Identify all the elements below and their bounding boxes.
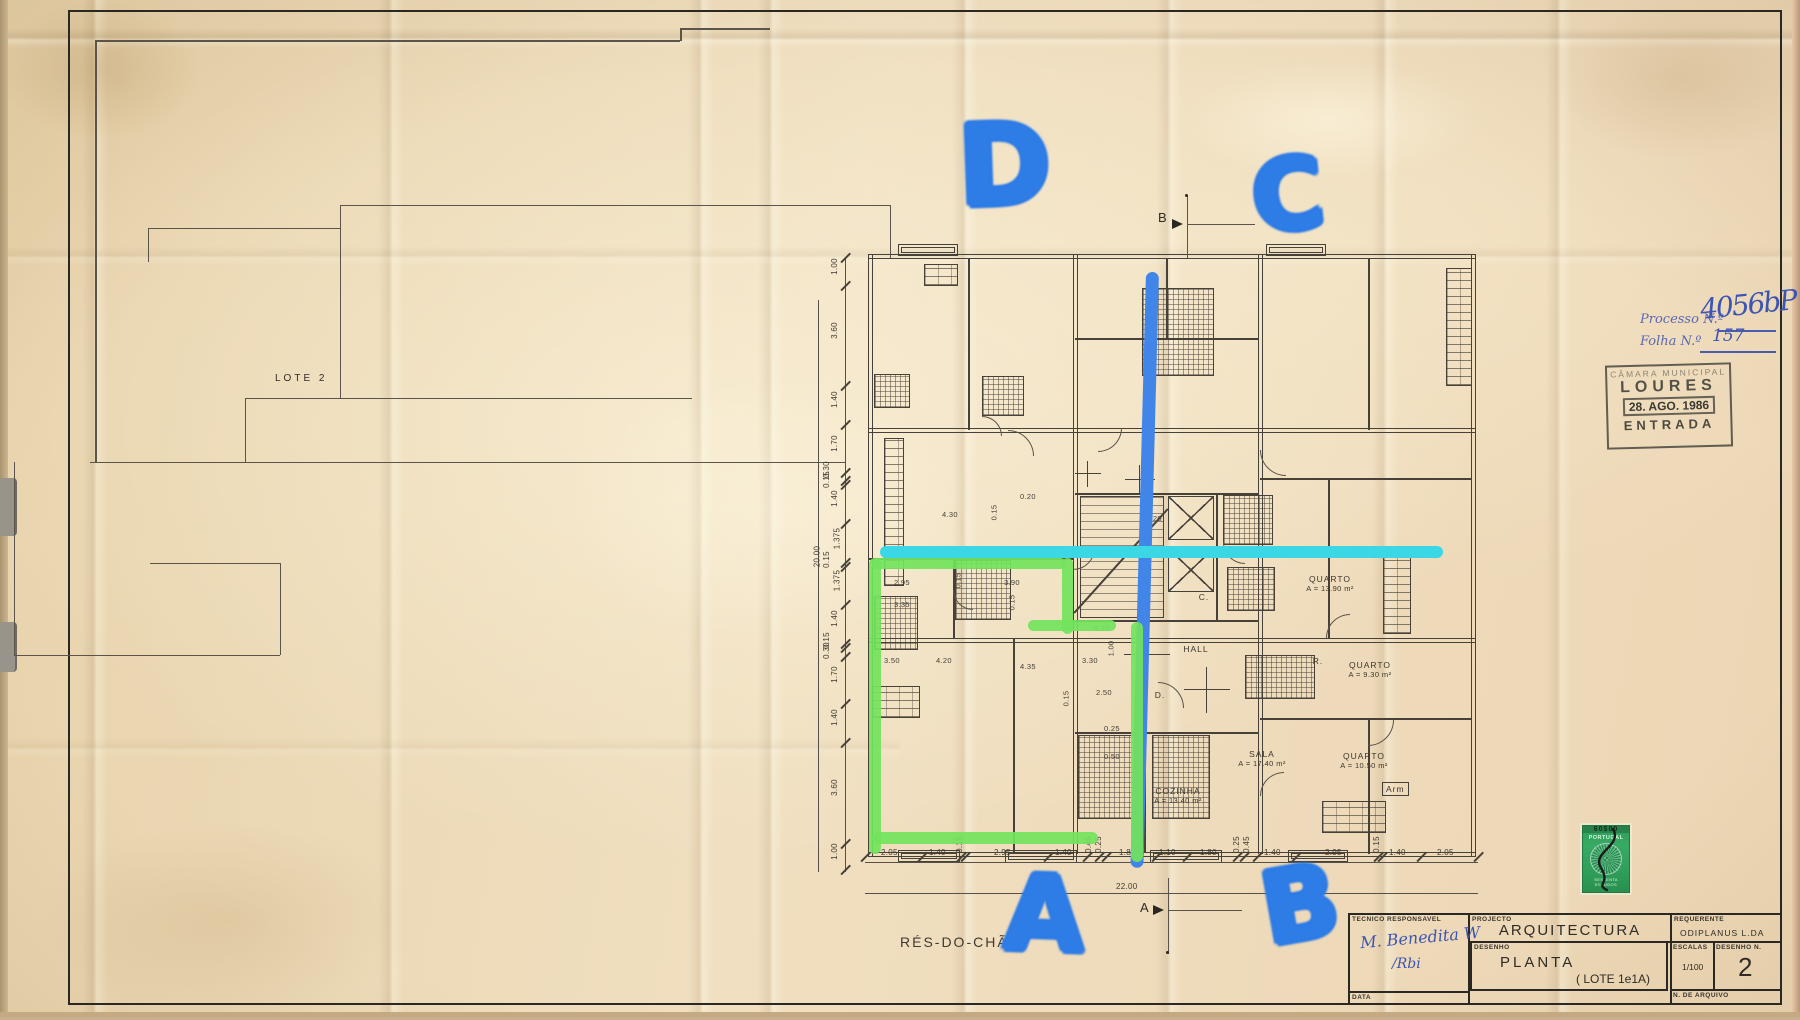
dimension-label: 0.15 — [1061, 691, 1070, 707]
dimension-label: 1.40 — [830, 610, 839, 627]
brick — [1383, 556, 1411, 634]
room-label: R. — [1313, 656, 1324, 666]
stain — [1180, 60, 1480, 180]
dimension-label: 1.40 — [830, 391, 839, 408]
fl — [1348, 991, 1468, 993]
brick — [1322, 801, 1386, 833]
crease-h — [0, 28, 1800, 48]
dimension-line — [865, 893, 1478, 894]
arc — [1260, 772, 1284, 796]
section-line-top — [1187, 224, 1255, 225]
folha-underline — [1700, 351, 1776, 353]
annotation-letter-d: D — [956, 114, 1052, 218]
dimension-label: 1.00 — [830, 258, 839, 275]
signature-2: /Rbi — [1392, 956, 1421, 972]
dimension-label: 3.60 — [830, 322, 839, 339]
dimension-label: 1.00 — [1106, 641, 1115, 657]
dimension-line — [818, 300, 819, 872]
green-highlight — [872, 558, 1066, 569]
floor-plan: 22.00 20.00 2.051.400.152.951.400.450.25… — [858, 252, 1490, 912]
section-line-bottom — [1168, 878, 1169, 954]
room-area: A = 13.40 m² — [1154, 796, 1202, 805]
room-name: QUARTO — [1340, 751, 1388, 761]
arquivo-label: N. DE ARQUIVO — [1673, 992, 1729, 999]
room-label: QUARTOA = 9.30 m² — [1349, 660, 1392, 679]
annotation-letter-a: A — [1002, 867, 1086, 963]
dimension-label: 1.40 — [830, 709, 839, 726]
tile — [1227, 567, 1275, 611]
dimension-label: 0.45 — [1242, 836, 1251, 853]
tile — [1223, 495, 1273, 545]
total-dimension: 22.00 — [1116, 882, 1138, 891]
data-label: DATA — [1352, 994, 1371, 1001]
dimension-label: 1.10 — [1159, 848, 1176, 857]
green-highlight — [1028, 620, 1116, 631]
frame-line — [68, 10, 1782, 12]
dimension-label: 0.15 — [1007, 595, 1016, 611]
w — [1260, 718, 1472, 720]
green-highlight — [1131, 622, 1143, 862]
dimension-label: 2.50 — [1096, 688, 1112, 697]
dot — [1185, 194, 1188, 197]
lot-boundary — [245, 398, 692, 399]
fl — [1670, 989, 1782, 991]
section-label-top: B — [1158, 210, 1167, 225]
w — [1368, 258, 1370, 430]
numero-value: 2 — [1738, 952, 1752, 983]
path — [1599, 829, 1615, 890]
section-label-bottom: A — [1140, 900, 1149, 915]
dwh — [868, 428, 1476, 433]
frame-inner-line — [680, 28, 770, 30]
dimension-label: 4.35 — [1020, 662, 1036, 671]
arc — [1098, 428, 1122, 452]
stain — [0, 0, 200, 140]
dimension-label: 1.70 — [830, 666, 839, 683]
room-name: R. — [1313, 656, 1324, 666]
folha-label: Folha N.º — [1640, 334, 1701, 349]
room-name: Arm — [1386, 784, 1405, 794]
stamp-date: 28. AGO. 1986 — [1623, 396, 1716, 416]
dimension-label: 0.30 — [822, 642, 831, 659]
w — [1075, 732, 1258, 734]
lot-boundary — [148, 228, 149, 262]
frame-line — [68, 10, 70, 1005]
lot-boundary — [148, 228, 340, 229]
fl — [1713, 942, 1715, 991]
lot-boundary — [280, 563, 281, 655]
dimension-label: 0.20 — [1020, 492, 1036, 501]
folha-value: 157 — [1712, 326, 1744, 346]
room-name: QUARTO — [1306, 574, 1354, 584]
green-highlight — [869, 558, 881, 854]
dimension-label: 2.05 — [1437, 848, 1454, 857]
numero-label: DESENHO N. — [1716, 944, 1761, 951]
crease-v — [1546, 0, 1572, 1017]
room-area: A = 13.90 m² — [1306, 584, 1354, 593]
w — [1260, 478, 1472, 480]
room-label: HALL — [1183, 644, 1208, 654]
stamp-city: LOURES — [1607, 376, 1729, 397]
lot-boundary — [245, 398, 246, 462]
room-area: A = 9.30 m² — [1349, 670, 1392, 679]
lot-boundary — [890, 205, 891, 258]
green-highlight — [872, 832, 1098, 844]
room-name: D. — [1155, 690, 1166, 700]
dimension-label: 0.15 — [1372, 836, 1381, 853]
lot-boundary — [340, 205, 341, 398]
crease-h — [0, 738, 900, 758]
dimension-label: 1.375 — [832, 570, 841, 592]
lot-boundary — [90, 462, 845, 463]
tile — [982, 376, 1024, 416]
section-line-top — [1187, 196, 1188, 258]
dimension-label: 0.15 — [822, 551, 831, 568]
section-arrow — [1153, 905, 1164, 915]
dimension-label: 4.20 — [936, 656, 952, 665]
frame-inner-line — [95, 40, 680, 42]
dimension-label: 1.40 — [1389, 848, 1406, 857]
dimension-label: 2.05 — [881, 848, 898, 857]
room-name: SALA — [1238, 749, 1286, 759]
dimension-label: 3.50 — [884, 656, 900, 665]
tecnico-label: TECNICO RESPONSAVEL — [1352, 916, 1441, 923]
desenho-label: DESENHO — [1474, 944, 1510, 951]
dimension-label: 3.90 — [1004, 578, 1020, 587]
tile — [1152, 735, 1210, 819]
desenho-value: PLANTA — [1500, 954, 1575, 971]
elevator-shaft — [1168, 496, 1214, 540]
lot-label: LOTE 2 — [275, 373, 327, 384]
dimension-label: 3.30 — [1082, 656, 1098, 665]
crease-v — [378, 0, 404, 1017]
room-label: D. — [1155, 690, 1166, 700]
dimension-label: 0.25 — [1104, 724, 1120, 733]
dimension-label: 3.35 — [894, 600, 910, 609]
escalas-value: 1/100 — [1682, 962, 1703, 972]
arc — [1260, 450, 1286, 476]
tile — [1245, 655, 1315, 699]
dimension-label: 0.15 — [989, 505, 998, 521]
dwh — [868, 254, 1476, 259]
arc — [1008, 430, 1034, 456]
total-dimension: 20.00 — [812, 546, 821, 568]
signature: M. Benedita W — [1359, 923, 1481, 952]
room-label: C. — [1199, 592, 1210, 602]
pen-cancellation-mark — [1583, 826, 1629, 892]
room-label: COZINHAA = 13.40 m² — [1154, 786, 1202, 805]
cyan-marker-line — [880, 546, 1443, 558]
dimension-label: 3.60 — [830, 779, 839, 796]
crease-v — [688, 0, 714, 1017]
frame-line — [1780, 10, 1782, 1005]
room-name: COZINHA — [1154, 786, 1202, 796]
dimension-label: 1.40 — [830, 490, 839, 507]
bay — [898, 244, 958, 256]
brick — [924, 264, 958, 286]
lot-boundary — [340, 205, 890, 206]
room-area: A = 17.40 m² — [1238, 759, 1286, 768]
dimension-label: 1.40 — [929, 848, 946, 857]
stamp-entrada: ENTRADA — [1608, 415, 1730, 433]
cross — [1075, 461, 1101, 487]
dimension-label: 2.95 — [894, 578, 910, 587]
room-label: SALAA = 17.40 m² — [1238, 749, 1286, 768]
escalas-label: ESCALAS — [1673, 944, 1708, 951]
dimension-label: 1.80 — [1200, 848, 1217, 857]
room-area: A = 10.50 m² — [1340, 761, 1388, 770]
room-label: Arm — [1382, 782, 1409, 796]
lot-boundary — [14, 462, 15, 655]
dimension-label: 0.15 — [953, 573, 962, 589]
scanned-blueprint-sheet: LOTE 2 — [0, 0, 1800, 1017]
entrada-stamp: CÂMARA MUNICIPAL LOURES 28. AGO. 1986 EN… — [1605, 362, 1733, 449]
projecto-value: ARQUITECTURA — [1480, 922, 1660, 939]
section-line-bottom — [1168, 910, 1242, 911]
dimension-label: 0.50 — [1104, 752, 1120, 761]
dwh — [868, 638, 1476, 643]
tile — [874, 374, 910, 408]
dimension-label: 1.00 — [830, 843, 839, 860]
w — [968, 258, 970, 430]
lot-boundary — [150, 563, 280, 564]
desenho-sub: ( LOTE 1e1A) — [1576, 972, 1650, 986]
frame-line — [68, 1003, 1782, 1005]
fl — [1348, 913, 1782, 915]
annotation-letter-c: C — [1248, 148, 1329, 243]
w — [1013, 638, 1015, 853]
room-label: QUARTOA = 10.50 m² — [1340, 751, 1388, 770]
section-arrow — [1172, 219, 1183, 229]
room-label: QUARTOA = 13.90 m² — [1306, 574, 1354, 593]
dimension-label: 1.70 — [830, 435, 839, 452]
brick — [1446, 268, 1472, 386]
room-name: C. — [1199, 592, 1210, 602]
arc — [1368, 720, 1394, 746]
dot — [1166, 951, 1169, 954]
arc — [982, 416, 1002, 436]
dimension-label: 0.15 — [822, 471, 831, 488]
dimension-label: 4.30 — [942, 510, 958, 519]
scan-edge-right — [1792, 0, 1800, 1017]
frame-inner-line — [680, 28, 682, 41]
crease-v — [758, 0, 784, 1017]
fiscal-stamp: 60$00 PORTUGAL SESSENTA ESCUDOS — [1582, 825, 1630, 893]
lot-boundary — [14, 655, 280, 656]
stain — [1550, 0, 1800, 160]
room-name: QUARTO — [1349, 660, 1392, 670]
room-name: HALL — [1183, 644, 1208, 654]
requerente-label: REQUERENTE — [1674, 916, 1724, 923]
stain — [40, 820, 420, 1020]
frame-inner-line — [95, 40, 97, 462]
dimension-label: 1.375 — [832, 528, 841, 550]
processo-value: 4056bP — [1699, 283, 1798, 326]
w — [1328, 478, 1330, 638]
requerente-value: ODIPLANUS L.DA — [1680, 928, 1764, 938]
scan-edge-bottom — [0, 1012, 1800, 1017]
cross — [1184, 667, 1230, 713]
annotation-letter-b: B — [1255, 854, 1346, 956]
dimension-label: 0.25 — [1232, 836, 1241, 853]
